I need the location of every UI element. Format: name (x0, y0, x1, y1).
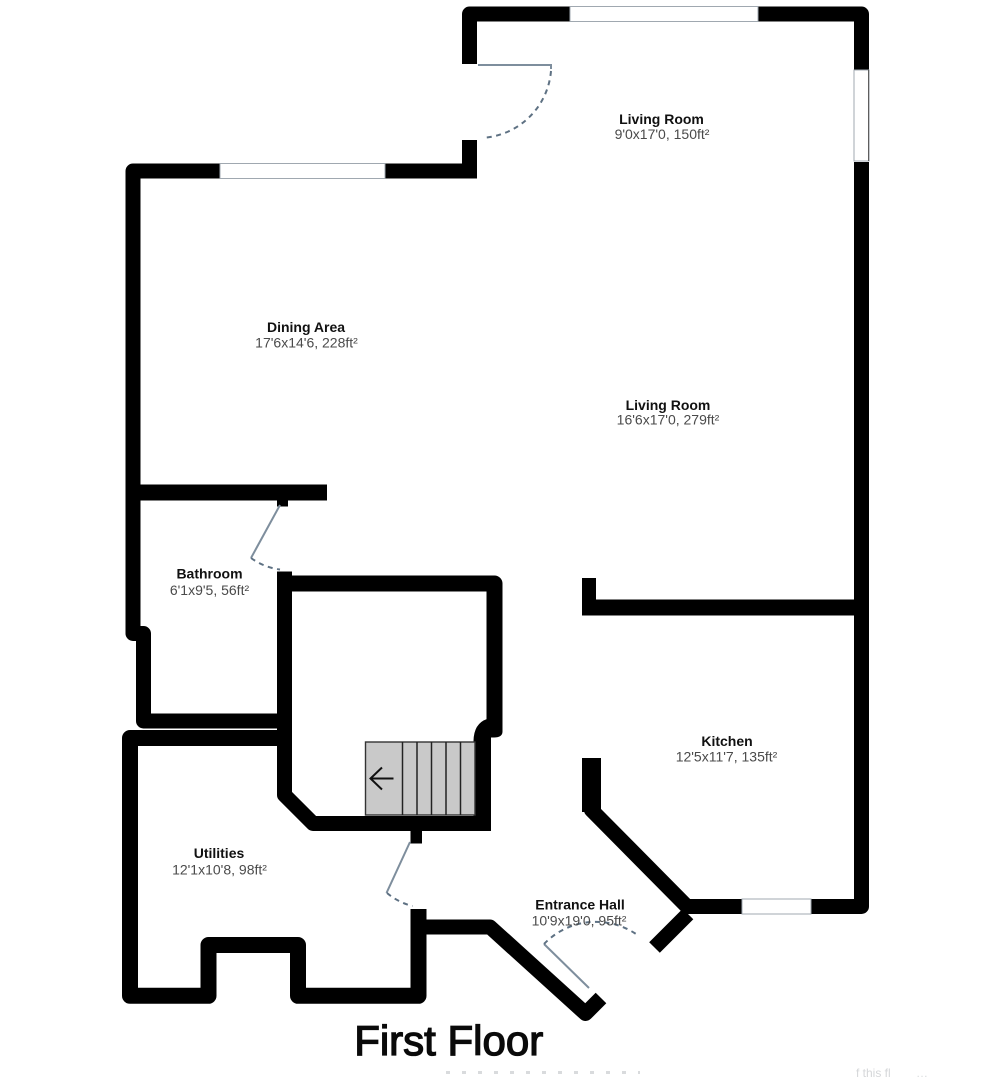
svg-text:6'1x9'5, 56ft²: 6'1x9'5, 56ft² (170, 582, 250, 598)
svg-text:Entrance Hall: Entrance Hall (535, 897, 624, 913)
svg-text:16'6x17'0, 279ft²: 16'6x17'0, 279ft² (617, 412, 720, 428)
svg-text:Dining Area: Dining Area (267, 319, 345, 335)
svg-text:17'6x14'6, 228ft²: 17'6x14'6, 228ft² (255, 335, 358, 351)
svg-text:9'0x17'0, 150ft²: 9'0x17'0, 150ft² (615, 126, 710, 142)
svg-text:Bathroom: Bathroom (176, 566, 242, 582)
svg-text:12'5x11'7, 135ft²: 12'5x11'7, 135ft² (676, 749, 778, 765)
svg-text:Living Room: Living Room (619, 111, 704, 127)
svg-text:Kitchen: Kitchen (701, 733, 752, 749)
svg-text:Utilities: Utilities (194, 845, 245, 861)
svg-text:First Floor: First Floor (354, 1017, 543, 1064)
svg-text:…: … (916, 1066, 928, 1080)
svg-text:f this fl: f this fl (856, 1066, 891, 1080)
svg-text:12'1x10'8, 98ft²: 12'1x10'8, 98ft² (172, 862, 267, 878)
svg-text:10'9x19'0, 95ft²: 10'9x19'0, 95ft² (532, 913, 627, 929)
